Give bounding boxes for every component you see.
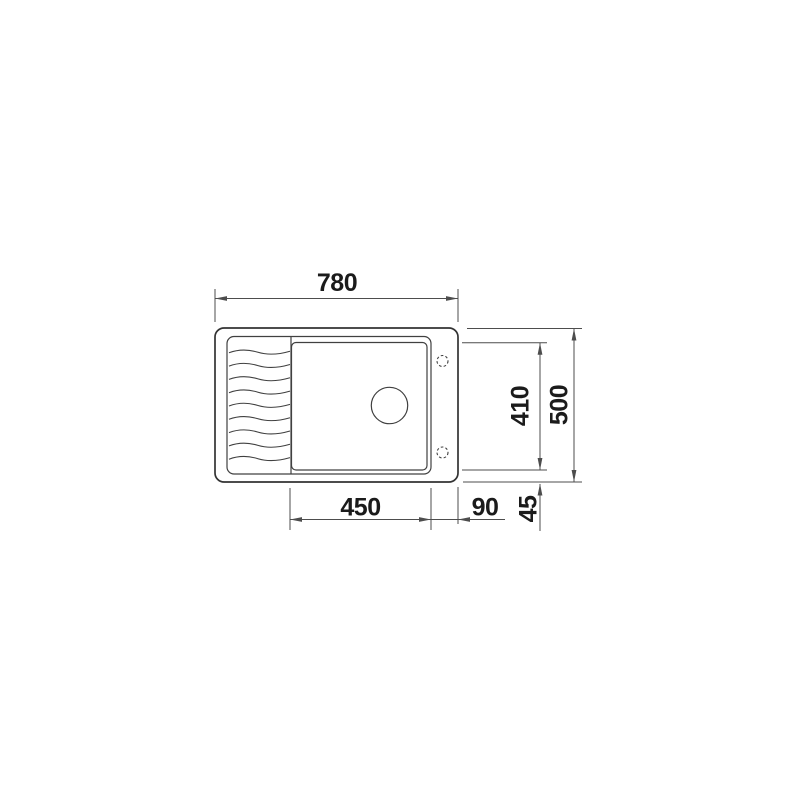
arrowhead-left xyxy=(215,296,227,301)
dim-label-bowl-width: 450 xyxy=(340,494,380,522)
dim-label-bowl-depth: 410 xyxy=(507,386,535,426)
arrowhead-left xyxy=(458,517,470,522)
dim-right-ledge: 90 xyxy=(458,487,498,524)
dim-label-right-ledge: 90 xyxy=(472,494,499,522)
dim-label-rim-offset: 45 xyxy=(515,495,543,522)
diagram-svg: 780 500 410 xyxy=(0,0,800,800)
dim-label-overall-width: 780 xyxy=(317,269,357,297)
dim-bowl-depth: 410 xyxy=(462,343,547,470)
arrowhead-right xyxy=(419,517,431,522)
arrowhead-up xyxy=(572,329,577,341)
arrowhead-right xyxy=(446,296,458,301)
dim-overall-width: 780 xyxy=(215,269,458,322)
canvas: 780 500 410 xyxy=(0,0,800,800)
dim-rim-offset: 45 xyxy=(515,484,543,532)
arrowhead-up xyxy=(538,484,543,496)
sink xyxy=(215,328,458,482)
arrowhead-down xyxy=(572,470,577,482)
sink-dimension-diagram: 780 500 410 xyxy=(0,0,800,800)
arrowhead-up xyxy=(538,343,543,355)
dim-label-overall-depth: 500 xyxy=(546,385,574,425)
arrowhead-left xyxy=(290,517,302,522)
arrowhead-down xyxy=(538,458,543,470)
